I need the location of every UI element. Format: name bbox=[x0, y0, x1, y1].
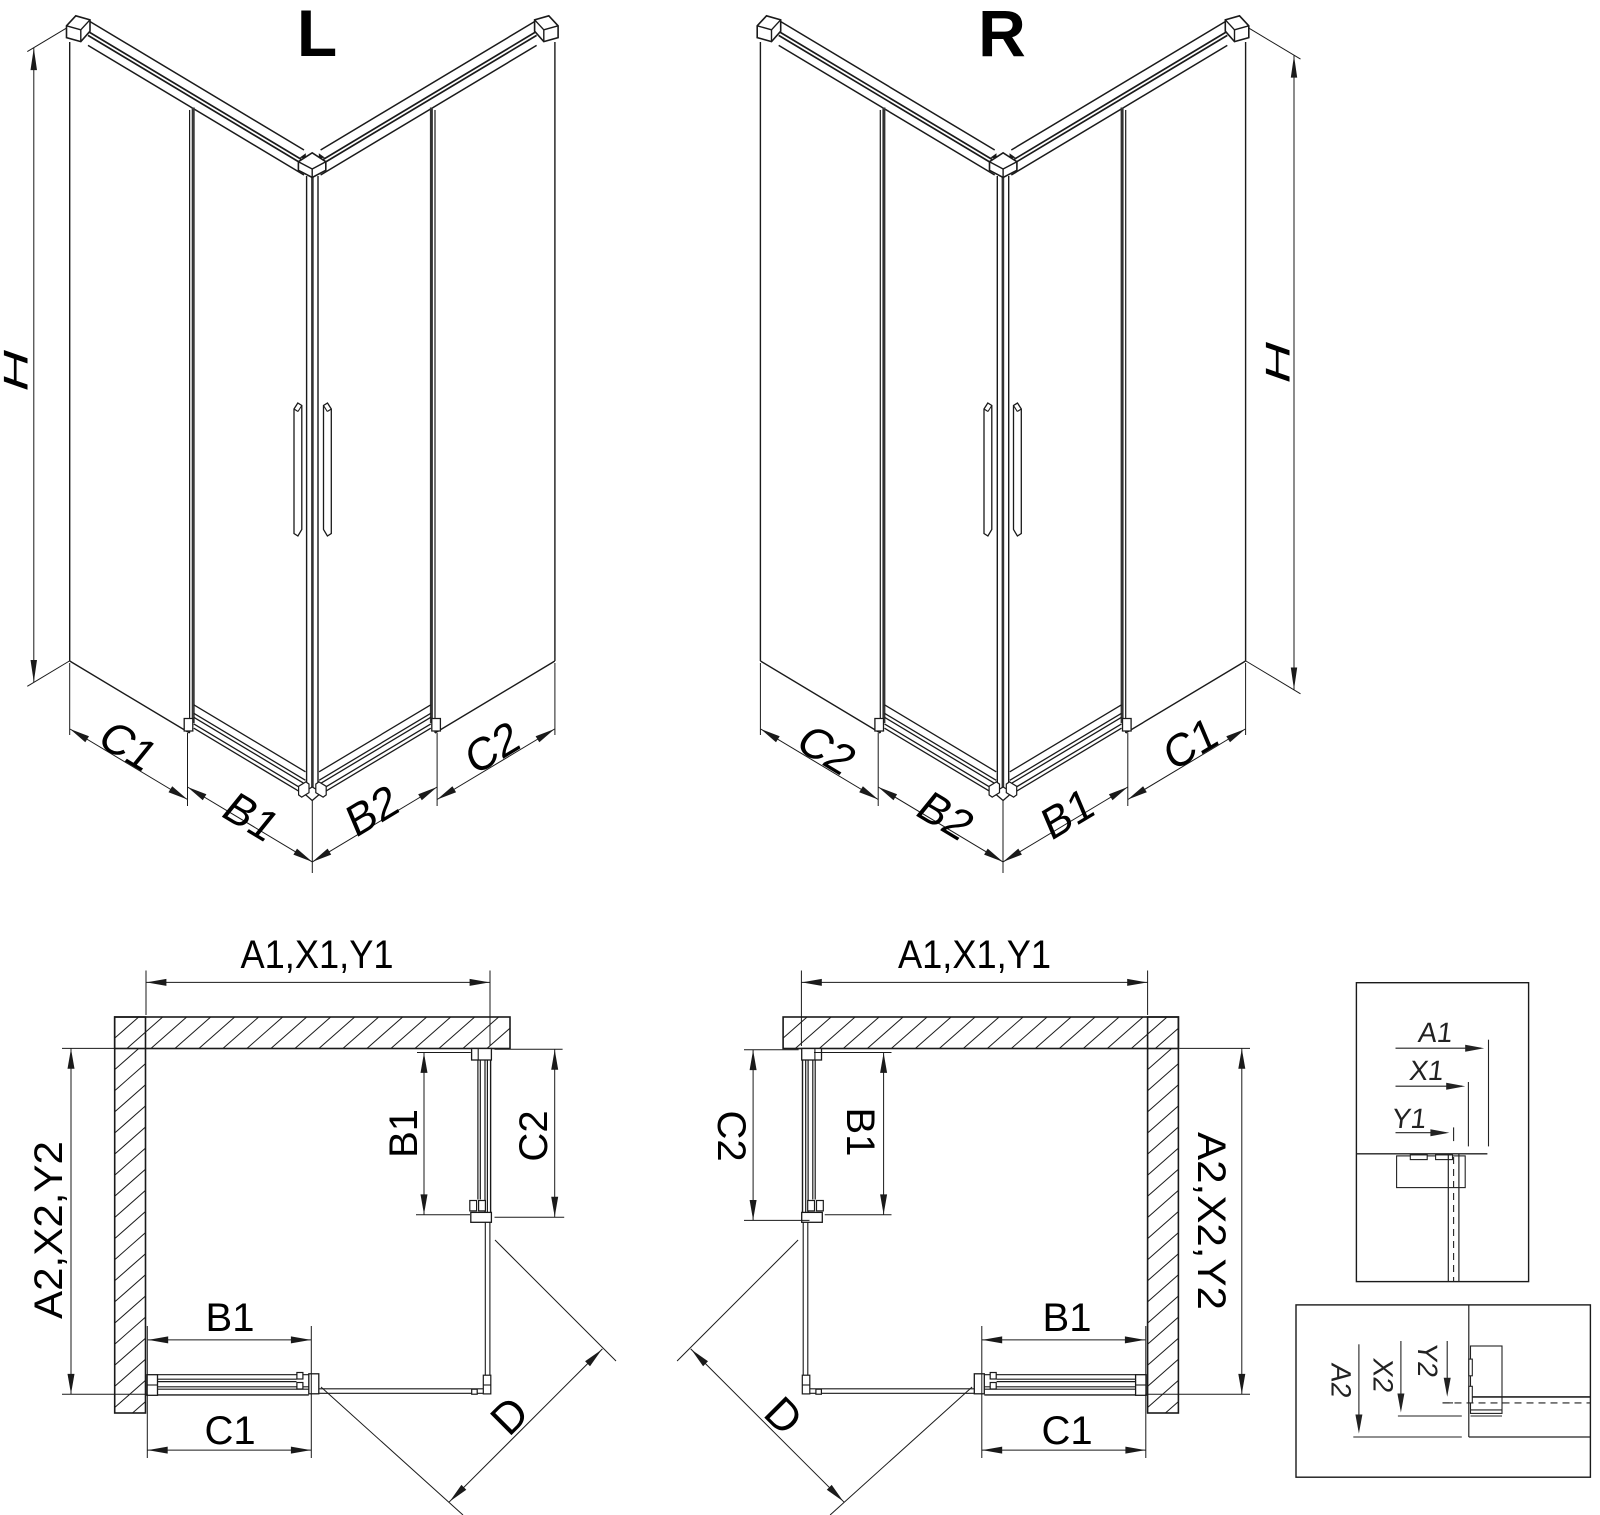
svg-text:B1: B1 bbox=[382, 1109, 426, 1158]
svg-text:X1: X1 bbox=[1408, 1055, 1446, 1086]
svg-text:A2,X2,Y2: A2,X2,Y2 bbox=[27, 1141, 71, 1319]
svg-text:A1: A1 bbox=[1417, 1017, 1455, 1048]
svg-text:C2: C2 bbox=[512, 1110, 556, 1161]
svg-text:Y1: Y1 bbox=[1390, 1103, 1428, 1134]
svg-text:B1: B1 bbox=[206, 1296, 255, 1340]
svg-text:A2: A2 bbox=[1326, 1362, 1357, 1400]
svg-text:C2: C2 bbox=[709, 1110, 753, 1161]
svg-text:Y2: Y2 bbox=[1412, 1341, 1443, 1379]
svg-text:C1: C1 bbox=[1041, 1409, 1092, 1453]
svg-text:A2,X2,Y2: A2,X2,Y2 bbox=[1189, 1132, 1233, 1310]
svg-text:B1: B1 bbox=[838, 1108, 882, 1157]
svg-text:A1,X1,Y1: A1,X1,Y1 bbox=[898, 933, 1051, 977]
svg-text:B1: B1 bbox=[1043, 1296, 1092, 1340]
svg-text:A1,X1,Y1: A1,X1,Y1 bbox=[241, 933, 394, 977]
svg-text:L: L bbox=[297, 0, 337, 70]
svg-text:R: R bbox=[978, 0, 1026, 70]
svg-text:X2: X2 bbox=[1368, 1357, 1399, 1395]
svg-text:C1: C1 bbox=[204, 1409, 255, 1453]
